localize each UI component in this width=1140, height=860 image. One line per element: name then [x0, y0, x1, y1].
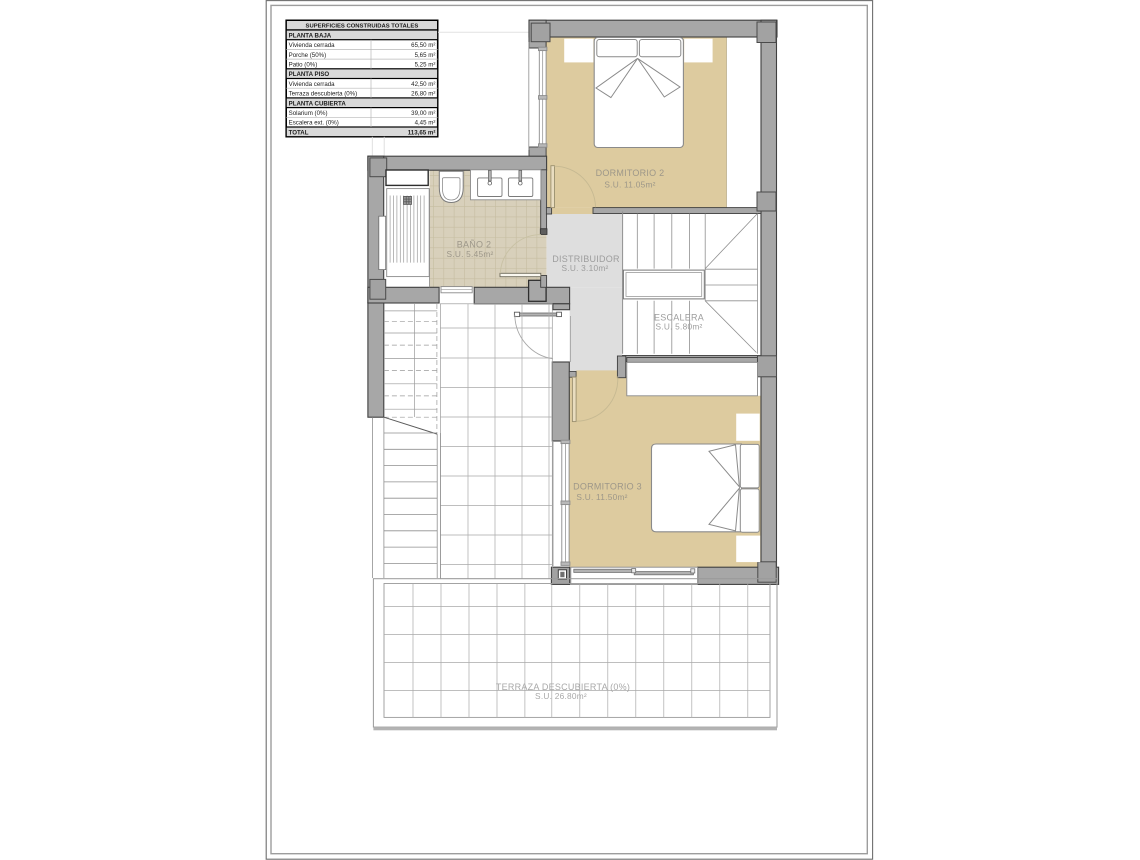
svg-text:113,65 m²: 113,65 m²	[408, 129, 436, 136]
svg-text:DORMITORIO 2: DORMITORIO 2	[596, 168, 665, 178]
svg-text:PLANTA BAJA: PLANTA BAJA	[289, 32, 332, 39]
svg-text:Patio (0%): Patio (0%)	[289, 62, 318, 69]
svg-text:S.U. 26.80m²: S.U. 26.80m²	[535, 691, 587, 701]
svg-text:65,50 m²: 65,50 m²	[411, 42, 435, 49]
svg-text:S.U. 11.50m²: S.U. 11.50m²	[576, 492, 627, 502]
svg-text:Solarium (0%): Solarium (0%)	[289, 110, 328, 117]
svg-text:Vivienda cerrada: Vivienda cerrada	[289, 42, 336, 49]
svg-text:TOTAL: TOTAL	[289, 129, 309, 136]
svg-text:Vivienda cerrada: Vivienda cerrada	[289, 81, 336, 88]
svg-text:5,25 m²: 5,25 m²	[415, 62, 436, 69]
svg-text:S.U. 5.45m²: S.U. 5.45m²	[446, 249, 493, 259]
svg-text:Terraza descubierta (0%): Terraza descubierta (0%)	[289, 91, 358, 98]
svg-text:4,45 m²: 4,45 m²	[415, 120, 436, 127]
svg-text:Escalera ext. (0%): Escalera ext. (0%)	[289, 120, 339, 127]
svg-text:42,50 m²: 42,50 m²	[411, 81, 435, 88]
svg-text:5,65 m²: 5,65 m²	[415, 52, 436, 59]
svg-text:S.U. 3.10m²: S.U. 3.10m²	[561, 263, 608, 273]
svg-text:26,80 m²: 26,80 m²	[411, 91, 435, 98]
svg-text:SUPERFICIES CONSTRUIDAS TOTALE: SUPERFICIES CONSTRUIDAS TOTALES	[306, 24, 419, 30]
svg-text:PLANTA CUBIERTA: PLANTA CUBIERTA	[289, 100, 347, 107]
svg-text:DORMITORIO 3: DORMITORIO 3	[573, 482, 642, 492]
svg-text:39,00 m²: 39,00 m²	[411, 110, 435, 117]
svg-text:S.U. 11.05m²: S.U. 11.05m²	[604, 179, 655, 189]
svg-text:S.U. 5.80m²: S.U. 5.80m²	[655, 321, 702, 331]
svg-text:PLANTA PISO: PLANTA PISO	[289, 71, 330, 78]
svg-text:Porche (50%): Porche (50%)	[289, 52, 327, 59]
